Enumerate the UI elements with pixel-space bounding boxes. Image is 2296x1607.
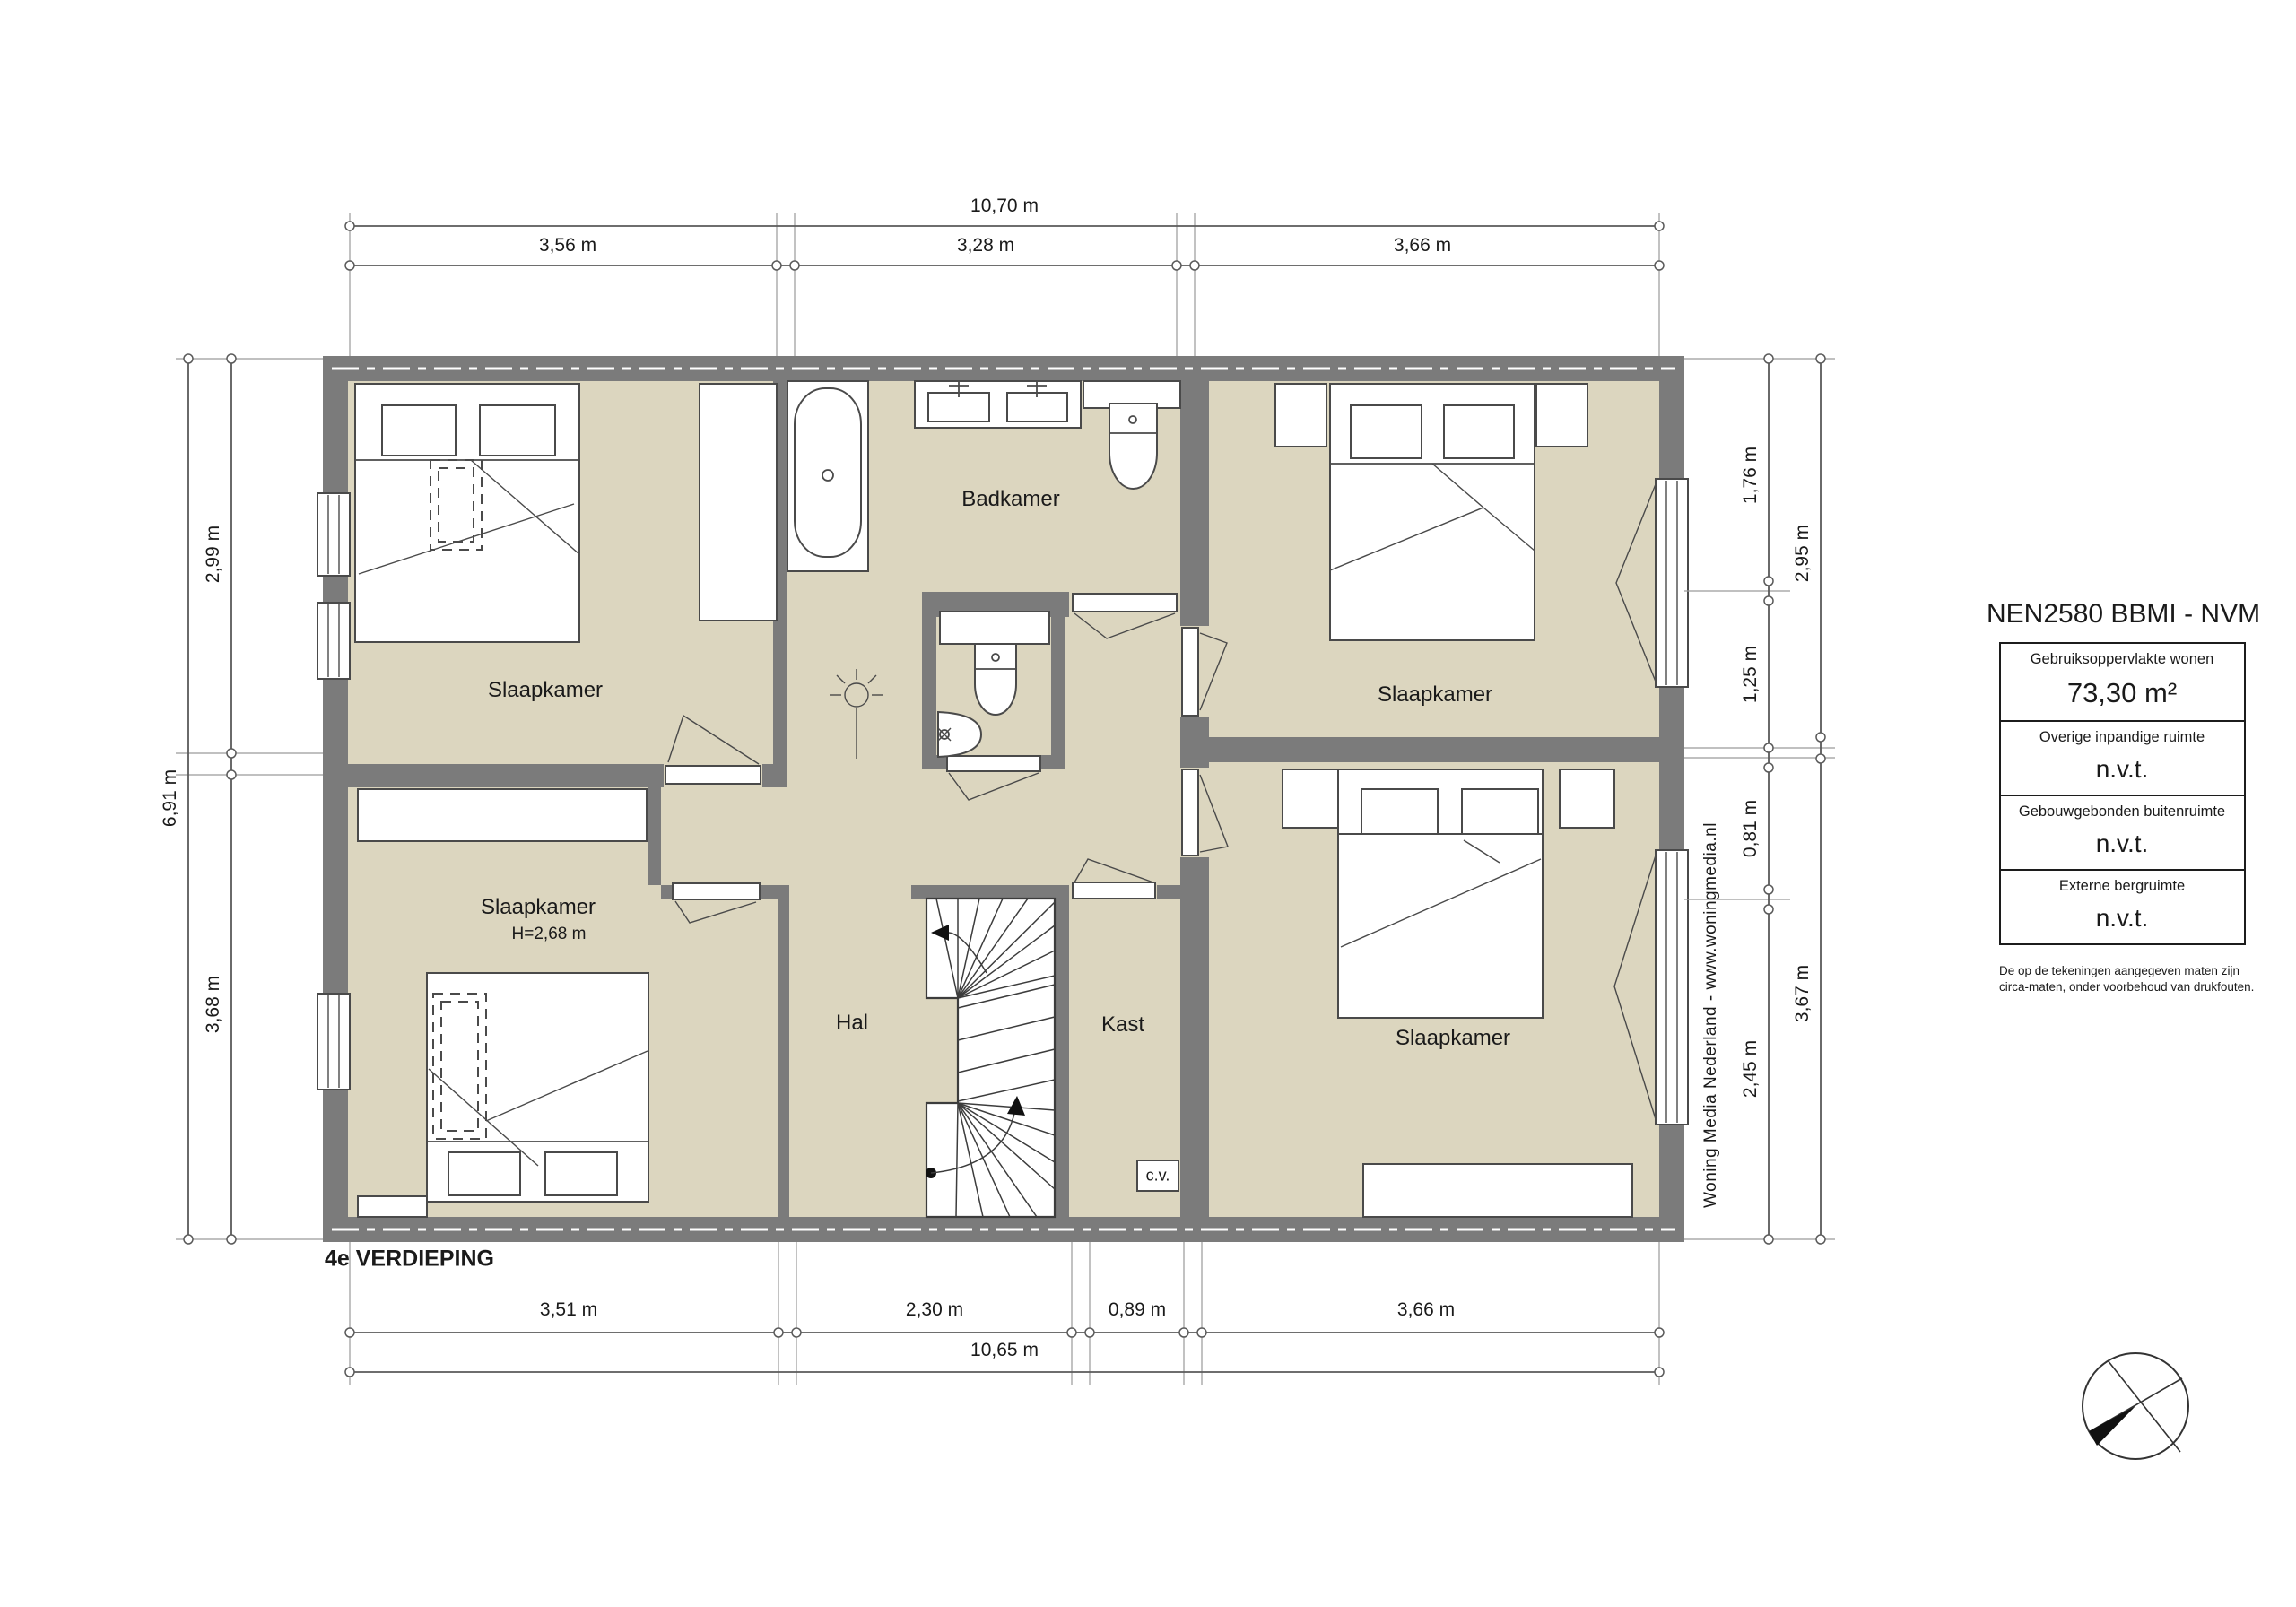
room-label-slaapkamer-bl: Slaapkamer xyxy=(481,895,596,920)
window-icon xyxy=(317,493,350,576)
bathtub-icon xyxy=(787,381,868,571)
floor-title: 4e VERDIEPING xyxy=(325,1247,494,1273)
dim-bottom-total: 10,65 m xyxy=(970,1340,1039,1361)
table-row: Overige inpandige ruimte n.v.t. xyxy=(2001,720,2244,795)
dim-top-seg3: 3,66 m xyxy=(1394,235,1451,256)
window-icon xyxy=(317,603,350,679)
dim-right-inner3: 0,81 m xyxy=(1740,800,1761,857)
window-icon xyxy=(317,994,350,1090)
row-value: n.v.t. xyxy=(2005,755,2240,784)
wardrobe-icon xyxy=(700,384,777,621)
wardrobe-icon xyxy=(358,789,647,841)
disclaimer-line1: De op de tekeningen aangegeven maten zij… xyxy=(1999,963,2257,979)
row-label: Overige inpandige ruimte xyxy=(2005,729,2240,746)
floorplan-drawing xyxy=(0,0,2296,1607)
room-label-slaapkamer-br: Slaapkamer xyxy=(1396,1026,1510,1051)
nen2580-table: Gebruiksoppervlakte wonen 73,30 m² Overi… xyxy=(1999,642,2246,945)
dim-left-seg2: 3,68 m xyxy=(203,976,224,1033)
dim-top-seg1: 3,56 m xyxy=(539,235,596,256)
table-row: Gebruiksoppervlakte wonen 73,30 m² xyxy=(2001,644,2244,720)
room-label-badkamer: Badkamer xyxy=(961,487,1059,512)
nen2580-panel: NEN2580 BBMI - NVM Gebruiksoppervlakte w… xyxy=(1987,599,2257,995)
room-label-slaapkamer-bl-height: H=2,68 m xyxy=(512,925,587,944)
dim-right-inner2: 1,25 m xyxy=(1740,646,1761,703)
room-label-kast: Kast xyxy=(1101,1012,1144,1038)
watermark-text: Woning Media Nederland - www.woningmedia… xyxy=(1701,822,1721,1208)
disclaimer-line2: circa-maten, onder voorbehoud van drukfo… xyxy=(1999,979,2257,995)
room-label-hal: Hal xyxy=(836,1011,868,1036)
row-value: n.v.t. xyxy=(2005,830,2240,858)
dim-left-total: 6,91 m xyxy=(160,769,181,827)
table-row: Externe bergruimte n.v.t. xyxy=(2001,869,2244,943)
double-sink-icon xyxy=(915,381,1081,428)
row-label: Externe bergruimte xyxy=(2005,878,2240,895)
dim-bottom-seg4: 3,66 m xyxy=(1397,1299,1455,1321)
row-value: n.v.t. xyxy=(2005,904,2240,933)
table-row: Gebouwgebonden buitenruimte n.v.t. xyxy=(2001,795,2244,869)
nen2580-title: NEN2580 BBMI - NVM xyxy=(1987,599,2257,630)
compass-icon xyxy=(2083,1353,2188,1459)
dim-top-total: 10,70 m xyxy=(970,195,1039,217)
dim-right-outer2: 3,67 m xyxy=(1792,965,1813,1022)
room-label-slaapkamer-tr: Slaapkamer xyxy=(1378,682,1492,708)
dim-bottom-seg3: 0,89 m xyxy=(1109,1299,1166,1321)
dim-right-outer1: 2,95 m xyxy=(1792,525,1813,582)
row-label: Gebruiksoppervlakte wonen xyxy=(2005,651,2240,668)
room-label-slaapkamer-tl: Slaapkamer xyxy=(488,678,603,703)
dim-right-inner1: 1,76 m xyxy=(1740,447,1761,504)
dim-bottom-seg1: 3,51 m xyxy=(540,1299,597,1321)
room-label-cv: c.v. xyxy=(1146,1167,1170,1186)
dim-right-inner4: 2,45 m xyxy=(1740,1040,1761,1098)
floorplan-page: { "title": "4e VERDIEPING", "rooms": { "… xyxy=(0,0,2296,1607)
dim-left-seg1: 2,99 m xyxy=(203,526,224,583)
dim-bottom-seg2: 2,30 m xyxy=(906,1299,963,1321)
disclaimer: De op de tekeningen aangegeven maten zij… xyxy=(1987,963,2257,995)
row-label: Gebouwgebonden buitenruimte xyxy=(2005,803,2240,821)
dim-top-seg2: 3,28 m xyxy=(957,235,1014,256)
bed-icon xyxy=(355,384,579,642)
row-value: 73,30 m² xyxy=(2005,677,2240,709)
dresser-icon xyxy=(1363,1164,1632,1217)
